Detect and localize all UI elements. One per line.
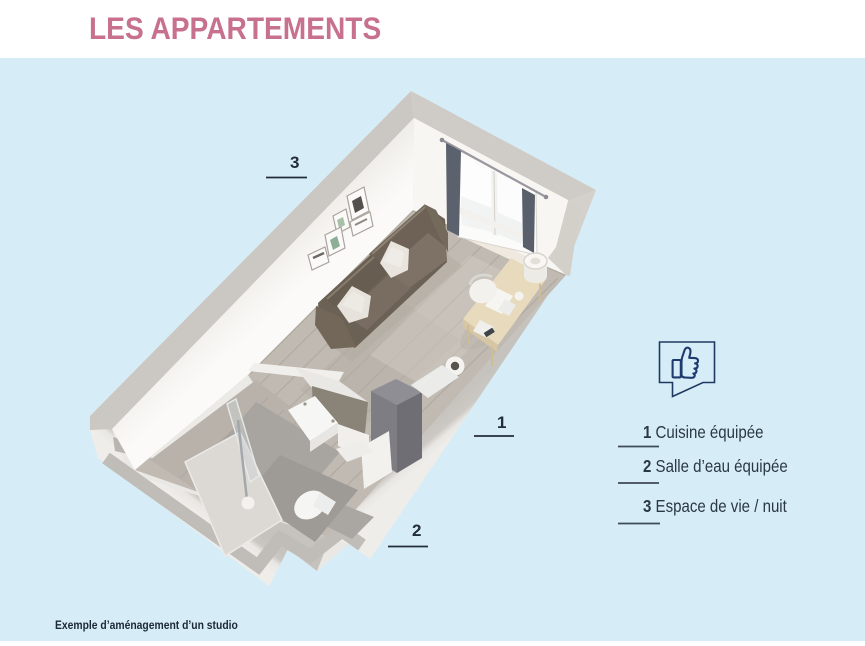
svg-text:1: 1: [497, 413, 506, 432]
svg-text:3 Espace de vie / nuit: 3 Espace de vie / nuit: [643, 497, 787, 516]
svg-text:Exemple d’aménagement d’un stu: Exemple d’aménagement d’un studio: [55, 620, 238, 633]
svg-text:3: 3: [290, 153, 299, 172]
svg-text:1 Cuisine équipée: 1 Cuisine équipée: [643, 423, 763, 442]
svg-text:2: 2: [412, 521, 421, 540]
svg-text:2 Salle d’eau équipée: 2 Salle d’eau équipée: [643, 457, 788, 476]
svg-text:LES APPARTEMENTS: LES APPARTEMENTS: [89, 12, 381, 47]
